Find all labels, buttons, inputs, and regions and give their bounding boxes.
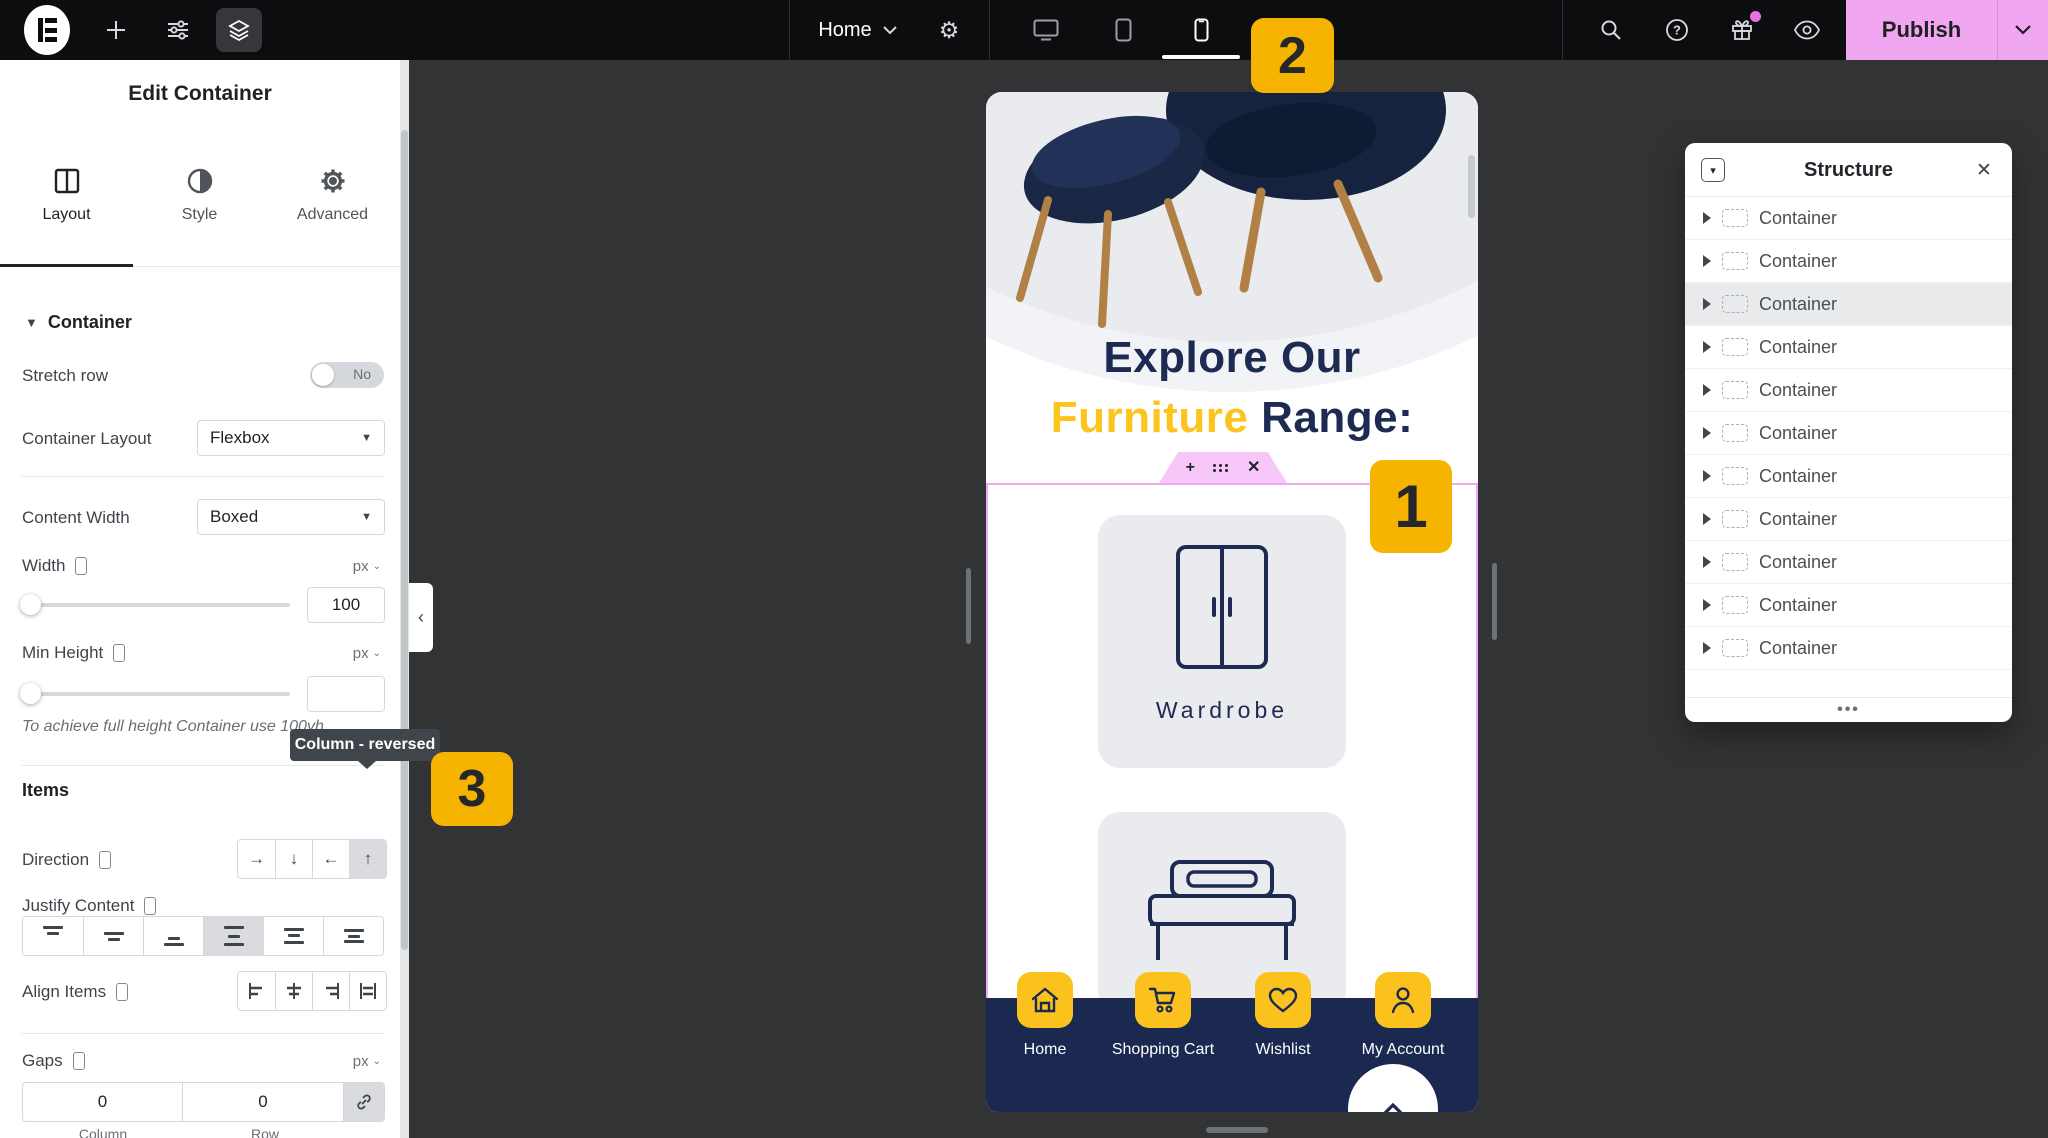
structure-resize-handle[interactable]: ••• xyxy=(1685,697,2012,722)
structure-row[interactable]: Container xyxy=(1685,627,2012,670)
divider xyxy=(22,476,385,477)
structure-panel: ▾ Structure ✕ Container Container Contai… xyxy=(1685,143,2012,722)
nav-item-home[interactable]: Home xyxy=(990,998,1100,1062)
gift-icon xyxy=(1730,18,1754,42)
container-layout-label: Container Layout xyxy=(22,429,151,449)
structure-row[interactable]: Container xyxy=(1685,197,2012,240)
chevron-left-icon: ‹ xyxy=(418,607,424,628)
style-icon xyxy=(187,168,213,194)
align-center-icon xyxy=(285,982,303,1000)
justify-start-icon xyxy=(43,926,63,946)
caret-right-icon[interactable] xyxy=(1703,599,1711,611)
panel-title: Edit Container xyxy=(0,82,400,106)
min-height-label: Min Height xyxy=(22,643,125,663)
panel-tabs: Layout Style Advanced xyxy=(0,125,400,267)
arrow-up-icon: ↑ xyxy=(364,849,373,869)
resize-handle-right[interactable] xyxy=(1492,563,1497,640)
stretch-row-toggle[interactable]: No xyxy=(310,362,384,388)
page-switcher-chevron[interactable] xyxy=(878,0,902,60)
device-tablet-button[interactable] xyxy=(1105,0,1141,60)
nav-item-shopping-cart[interactable]: Shopping Cart xyxy=(1108,998,1218,1062)
publish-button[interactable]: Publish xyxy=(1846,0,1997,60)
responsive-mobile-icon[interactable] xyxy=(73,1052,85,1070)
gap-row-sublabel: Row xyxy=(222,1126,308,1138)
card-label: Wardrobe xyxy=(1098,697,1346,724)
justify-center-button[interactable] xyxy=(83,917,143,955)
slider-handle[interactable] xyxy=(20,594,41,615)
scroll-to-top-button[interactable] xyxy=(1348,1064,1438,1112)
align-start-button[interactable] xyxy=(238,972,275,1010)
elementor-e-icon xyxy=(38,18,57,42)
gap-column-sublabel: Column xyxy=(60,1126,146,1138)
responsive-mobile-icon[interactable] xyxy=(99,851,111,869)
chevron-down-icon: ▼ xyxy=(25,315,38,330)
caret-right-icon[interactable] xyxy=(1703,341,1711,353)
divider xyxy=(22,1033,385,1034)
device-desktop-button[interactable] xyxy=(1028,0,1064,60)
chevron-down-icon xyxy=(2015,25,2031,35)
structure-panel-button[interactable] xyxy=(216,8,262,52)
publish-label: Publish xyxy=(1882,17,1961,43)
direction-row-button[interactable]: → xyxy=(238,840,275,878)
structure-header: ▾ Structure ✕ xyxy=(1685,143,2012,197)
tab-label: Layout xyxy=(42,206,90,224)
elementor-logo[interactable] xyxy=(24,5,70,55)
gap-column-input[interactable] xyxy=(22,1082,183,1122)
shopping-cart-icon xyxy=(1135,972,1191,1028)
annotation-badge-3: 3 xyxy=(431,752,513,826)
edit-container-panel: Edit Container Layout Style xyxy=(0,60,409,1138)
justify-space-evenly-button[interactable] xyxy=(323,917,383,955)
responsive-mobile-icon[interactable] xyxy=(144,897,156,915)
tooltip-text: Column - reversed xyxy=(295,736,435,754)
container-icon xyxy=(1722,553,1748,571)
annotation-badge-1: 1 xyxy=(1370,460,1452,553)
bottom-navigation: Home Shopping Cart Wishlist My Account xyxy=(986,998,1478,1112)
drag-container-icon[interactable] xyxy=(1213,464,1229,472)
selected-value: Boxed xyxy=(210,507,258,527)
arrow-left-icon: ← xyxy=(323,849,340,869)
annotation-badge-2: 2 xyxy=(1251,18,1334,93)
direction-button-group: → ↓ ← ↑ xyxy=(237,839,387,879)
structure-row[interactable]: Container xyxy=(1685,584,2012,627)
preview-button[interactable] xyxy=(1789,0,1825,60)
structure-row[interactable]: Container xyxy=(1685,541,2012,584)
caret-right-icon[interactable] xyxy=(1703,427,1711,439)
caret-right-icon[interactable] xyxy=(1703,642,1711,654)
align-center-button[interactable] xyxy=(275,972,312,1010)
caret-right-icon[interactable] xyxy=(1703,384,1711,396)
structure-title: Structure xyxy=(1685,159,2012,182)
container-icon xyxy=(1722,252,1748,270)
sliders-icon xyxy=(166,19,190,41)
stretch-row-label: Stretch row xyxy=(22,366,108,386)
layout-icon xyxy=(54,168,80,194)
container-icon xyxy=(1722,510,1748,528)
page-switcher[interactable]: Home xyxy=(810,0,880,60)
site-settings-button[interactable] xyxy=(160,0,196,60)
link-icon xyxy=(355,1093,373,1111)
eye-icon xyxy=(1794,20,1820,40)
heading-accent: Furniture xyxy=(1051,393,1249,442)
hero-heading: Explore Our Furniture Range: xyxy=(986,328,1478,448)
structure-row-selected[interactable]: Container xyxy=(1685,283,2012,326)
slider-handle[interactable] xyxy=(20,683,41,704)
divider xyxy=(22,765,385,766)
gaps-unit-select[interactable]: px⌄ xyxy=(353,1053,381,1070)
svg-text:?: ? xyxy=(1673,23,1681,38)
publish-split-button: Publish xyxy=(1846,0,2048,60)
structure-row[interactable]: Container xyxy=(1685,455,2012,498)
min-height-input[interactable] xyxy=(307,676,385,712)
content-width-label: Content Width xyxy=(22,508,130,528)
selected-value: Flexbox xyxy=(210,428,270,448)
gaps-inputs xyxy=(22,1082,385,1122)
min-height-unit-select[interactable]: px⌄ xyxy=(353,645,381,662)
caret-right-icon[interactable] xyxy=(1703,212,1711,224)
container-icon xyxy=(1722,295,1748,313)
mobile-icon xyxy=(1194,18,1209,42)
arrow-down-icon: ↓ xyxy=(290,849,299,869)
topbar-divider xyxy=(789,0,790,60)
tab-advanced[interactable]: Advanced xyxy=(266,125,399,266)
nav-item-wishlist[interactable]: Wishlist xyxy=(1228,998,1338,1062)
items-section-title: Items xyxy=(22,780,69,801)
question-icon: ? xyxy=(1665,18,1689,42)
justify-content-button-group xyxy=(22,916,384,956)
justify-end-icon xyxy=(164,926,184,946)
sidebar-scrollbar[interactable] xyxy=(400,60,409,1138)
tablet-icon xyxy=(1115,18,1132,42)
publish-options-button[interactable] xyxy=(1998,0,2048,60)
justify-center-icon xyxy=(104,926,124,946)
section-title: Container xyxy=(48,312,132,333)
width-label: Width xyxy=(22,556,87,576)
direction-label: Direction xyxy=(22,850,111,870)
responsive-mobile-icon[interactable] xyxy=(75,557,87,575)
responsive-mobile-icon[interactable] xyxy=(113,644,125,662)
justify-space-evenly-icon xyxy=(344,926,364,946)
container-icon xyxy=(1722,209,1748,227)
active-device-underline xyxy=(1162,55,1240,59)
wardrobe-icon xyxy=(1174,543,1270,671)
container-icon xyxy=(1722,639,1748,657)
plus-icon xyxy=(105,19,127,41)
scrollbar-thumb[interactable] xyxy=(401,130,408,950)
search-icon xyxy=(1600,19,1622,41)
gaps-label: Gaps xyxy=(22,1051,85,1071)
heart-icon xyxy=(1255,972,1311,1028)
align-items-label: Align Items xyxy=(22,982,128,1002)
tooltip-arrow xyxy=(358,761,376,769)
tab-label: Advanced xyxy=(297,206,368,224)
direction-row-reversed-button[interactable]: ← xyxy=(312,840,349,878)
resize-handle-left[interactable] xyxy=(966,568,971,644)
finder-search-button[interactable] xyxy=(1593,0,1629,60)
structure-row[interactable]: Container xyxy=(1685,240,2012,283)
caret-right-icon[interactable] xyxy=(1703,470,1711,482)
add-container-icon[interactable]: + xyxy=(1186,460,1195,476)
chevron-down-icon xyxy=(883,26,897,35)
caret-right-icon[interactable] xyxy=(1703,255,1711,267)
top-bar: Home ⚙ xyxy=(0,0,2048,60)
page-settings-button[interactable]: ⚙ xyxy=(932,0,966,60)
justify-space-between-button[interactable] xyxy=(203,917,263,955)
active-tab-underline xyxy=(0,264,133,267)
chevron-down-icon: ▼ xyxy=(361,511,372,523)
justify-end-button[interactable] xyxy=(143,917,203,955)
heading-line-1: Explore Our xyxy=(986,328,1478,388)
close-icon[interactable]: ✕ xyxy=(1972,158,1996,182)
chevron-up-icon xyxy=(1382,1103,1404,1113)
container-icon xyxy=(1722,381,1748,399)
structure-row[interactable]: Container xyxy=(1685,326,2012,369)
caret-right-icon[interactable] xyxy=(1703,513,1711,525)
align-stretch-icon xyxy=(359,982,377,1000)
align-end-icon xyxy=(322,982,340,1000)
structure-row[interactable]: Container xyxy=(1685,498,2012,541)
caret-right-icon[interactable] xyxy=(1703,298,1711,310)
content-width-select[interactable]: Boxed ▼ xyxy=(197,499,385,535)
collapse-panel-button[interactable]: ‹ xyxy=(409,583,433,652)
user-icon xyxy=(1375,972,1431,1028)
tab-label: Style xyxy=(182,206,218,224)
responsive-mobile-icon[interactable] xyxy=(116,983,128,1001)
topbar-divider xyxy=(1562,0,1563,60)
resize-handle-bottom[interactable] xyxy=(1206,1127,1268,1133)
layers-icon xyxy=(227,18,251,42)
category-card-wardrobe[interactable]: Wardrobe xyxy=(1098,515,1346,768)
justify-space-between-icon xyxy=(224,926,244,946)
toggle-knob xyxy=(312,364,334,386)
align-end-button[interactable] xyxy=(312,972,349,1010)
home-icon xyxy=(1017,972,1073,1028)
structure-row[interactable]: Container xyxy=(1685,369,2012,412)
align-items-button-group xyxy=(237,971,387,1011)
justify-start-button[interactable] xyxy=(23,917,83,955)
container-edit-handle: + ✕ xyxy=(1159,452,1287,483)
container-icon xyxy=(1722,596,1748,614)
add-element-button[interactable] xyxy=(98,0,134,60)
container-icon xyxy=(1722,467,1748,485)
chevron-down-icon: ▼ xyxy=(361,432,372,444)
justify-space-around-button[interactable] xyxy=(263,917,323,955)
justify-space-around-icon xyxy=(284,926,304,946)
direction-column-button[interactable]: ↓ xyxy=(275,840,312,878)
bed-icon xyxy=(1142,858,1302,968)
help-button[interactable]: ? xyxy=(1659,0,1695,60)
whats-new-button[interactable] xyxy=(1724,0,1760,60)
mobile-preview: Explore Our Furniture Range: + ✕ Wardrob… xyxy=(986,92,1478,1112)
caret-right-icon[interactable] xyxy=(1703,556,1711,568)
notification-dot xyxy=(1750,11,1761,22)
align-stretch-button[interactable] xyxy=(349,972,386,1010)
width-slider[interactable] xyxy=(22,603,290,607)
delete-container-icon[interactable]: ✕ xyxy=(1247,460,1260,476)
min-height-slider[interactable] xyxy=(22,692,290,696)
elementor-editor: Home ⚙ xyxy=(0,0,2048,1138)
container-icon xyxy=(1722,424,1748,442)
preview-scrollbar-thumb[interactable] xyxy=(1468,155,1475,218)
align-start-icon xyxy=(248,982,266,1000)
desktop-icon xyxy=(1033,19,1059,41)
topbar-divider xyxy=(989,0,990,60)
gap-row-input[interactable] xyxy=(183,1082,344,1122)
justify-content-label: Justify Content xyxy=(22,896,156,916)
direction-tooltip: Column - reversed xyxy=(290,729,440,761)
container-layout-select[interactable]: Flexbox ▼ xyxy=(197,420,385,456)
device-mobile-button[interactable] xyxy=(1183,0,1219,60)
structure-row[interactable]: Container xyxy=(1685,412,2012,455)
heading-line-2: Furniture Range: xyxy=(986,388,1478,448)
container-icon xyxy=(1722,338,1748,356)
page-name: Home xyxy=(818,19,871,42)
toggle-state-label: No xyxy=(353,366,371,382)
width-input[interactable] xyxy=(307,587,385,623)
nav-item-my-account[interactable]: My Account xyxy=(1348,998,1458,1062)
gear-icon xyxy=(320,168,346,194)
arrow-right-icon: → xyxy=(248,849,265,869)
tab-layout[interactable]: Layout xyxy=(0,125,133,266)
container-section-header[interactable]: ▼ Container xyxy=(25,312,132,333)
tab-style[interactable]: Style xyxy=(133,125,266,266)
width-unit-select[interactable]: px⌄ xyxy=(353,558,381,575)
direction-column-reversed-button[interactable]: ↑ xyxy=(349,840,386,878)
link-values-button[interactable] xyxy=(344,1082,385,1122)
